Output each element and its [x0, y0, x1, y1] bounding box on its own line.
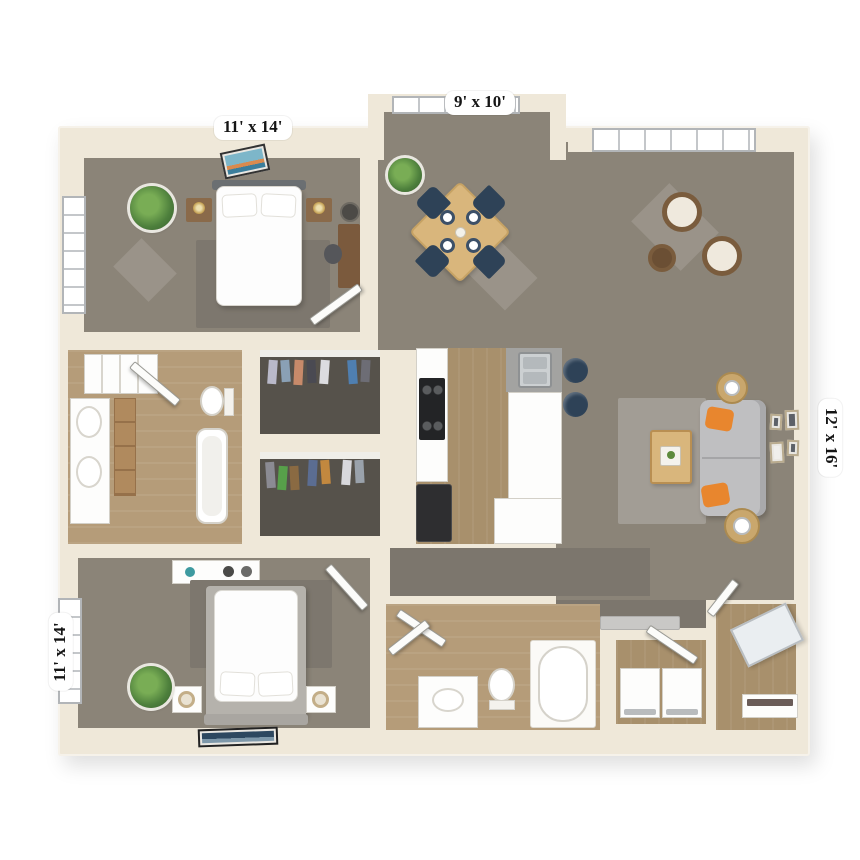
rattan-chair	[662, 192, 702, 232]
dining-centerpiece	[455, 227, 466, 238]
dining-place-setting	[440, 210, 455, 225]
entry-shoe-shelf	[742, 694, 798, 718]
bedroom1-lamp-right	[313, 202, 325, 214]
bath2-toilet-tank	[489, 700, 515, 710]
dining-dimension-label: 9' x 10'	[445, 91, 515, 115]
dining-dimension-text: 9' x 10'	[454, 92, 506, 111]
closet1-clothes	[264, 358, 376, 388]
rattan-chair	[702, 236, 742, 276]
bedroom1-dimension-text: 11' x 14'	[223, 117, 283, 136]
bedroom2-dimension-text: 11' x 14'	[50, 622, 69, 682]
bedroom2-pillow	[219, 671, 255, 697]
dining-window-left	[392, 96, 450, 114]
sofa-pillow-orange	[704, 406, 734, 432]
bath1-toilet-tank	[224, 388, 234, 416]
washer	[620, 668, 660, 718]
bedroom2-dimension-label: 11' x 14'	[49, 613, 73, 691]
closet2-clothes	[264, 460, 376, 494]
sofa-side-lamp-bottom	[733, 517, 751, 535]
living-wall-frame	[770, 414, 783, 431]
tv-console	[600, 616, 680, 630]
kitchen-cooktop	[419, 378, 445, 440]
bedroom2-lamp-right	[312, 691, 329, 708]
hall-floor	[390, 548, 650, 596]
coffee-table-tray	[660, 446, 681, 466]
living-dimension-text: 12' x 16'	[822, 408, 841, 468]
bedroom2-headboard	[204, 714, 308, 725]
bath2-toilet-bowl	[488, 668, 515, 702]
bedroom1-window	[62, 196, 86, 314]
dining-plant	[388, 158, 422, 192]
kitchen-sink	[518, 352, 552, 388]
rattan-side-table	[648, 244, 676, 272]
bedroom2-pillow	[257, 671, 293, 697]
bedroom1-lamp-left	[193, 202, 205, 214]
living-triple-window	[592, 128, 756, 152]
bedroom1-pillow	[260, 193, 296, 218]
dryer	[662, 668, 702, 718]
dining-place-setting	[466, 210, 481, 225]
dining-place-setting	[440, 238, 455, 253]
bath1-sink	[76, 406, 102, 438]
living-wall-frame	[785, 410, 800, 430]
bar-stool	[563, 392, 588, 417]
bath1-drawer-chest	[114, 398, 136, 496]
kitchen-refrigerator	[416, 484, 452, 542]
sofa-cushion-line	[702, 457, 760, 459]
living-dimension-label: 12' x 16'	[818, 399, 842, 477]
dining-place-setting	[466, 238, 481, 253]
bedroom1-pillow	[221, 193, 257, 218]
bedroom1-dimension-label: 11' x 14'	[214, 116, 292, 140]
bar-stool	[563, 358, 588, 383]
floorplan-image: 11' x 14' 9' x 10' 12' x 16' 11' x 14'	[0, 0, 860, 860]
bedroom1-desk-chair	[324, 244, 342, 264]
kitchen-bar-counter-return	[494, 498, 562, 544]
bedroom2-lamp-left	[178, 691, 195, 708]
bedroom1-plant	[130, 186, 174, 230]
bedroom1-hamper	[340, 202, 360, 222]
bath2-sink	[432, 688, 464, 712]
bath1-toilet-bowl	[200, 386, 224, 416]
closet2-shelf	[260, 452, 380, 459]
bedroom2-plant	[130, 666, 172, 708]
nook-wall-right	[550, 94, 566, 160]
bedroom2-wall-art	[198, 727, 279, 748]
closet1-shelf	[260, 350, 380, 357]
nook-wall-left	[368, 94, 384, 160]
bath2-tub	[538, 646, 588, 722]
living-wall-frame	[787, 440, 800, 456]
bath1-tub	[196, 428, 228, 524]
living-wall-frame	[769, 442, 784, 464]
sofa-pillow-orange	[700, 482, 730, 508]
bath1-sink	[76, 456, 102, 488]
sofa-side-lamp-top	[724, 380, 740, 396]
